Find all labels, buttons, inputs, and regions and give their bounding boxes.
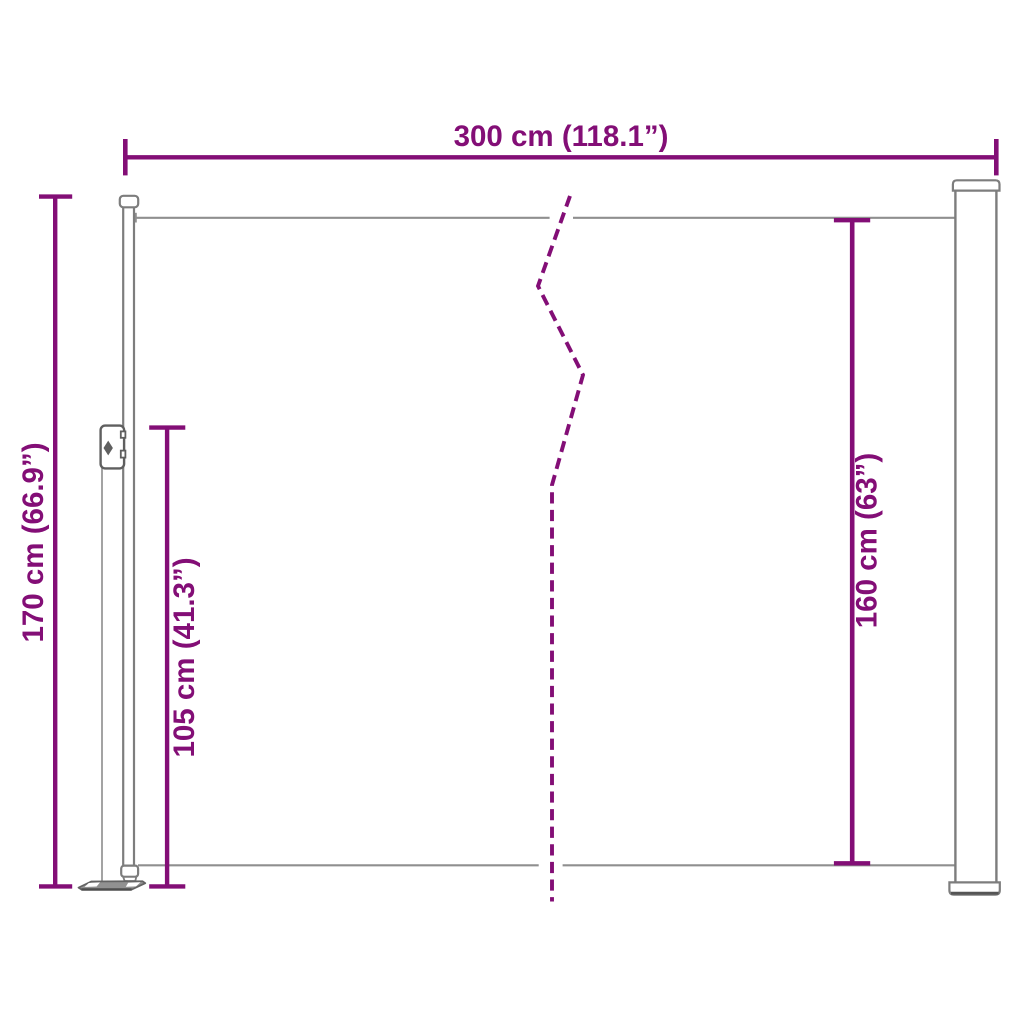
svg-text:170 cm (66.9”): 170 cm (66.9”) xyxy=(17,442,50,642)
svg-text:160 cm (63”): 160 cm (63”) xyxy=(851,453,884,628)
svg-text:300 cm (118.1”): 300 cm (118.1”) xyxy=(454,120,669,153)
svg-text:105 cm (41.3”): 105 cm (41.3”) xyxy=(168,557,201,757)
